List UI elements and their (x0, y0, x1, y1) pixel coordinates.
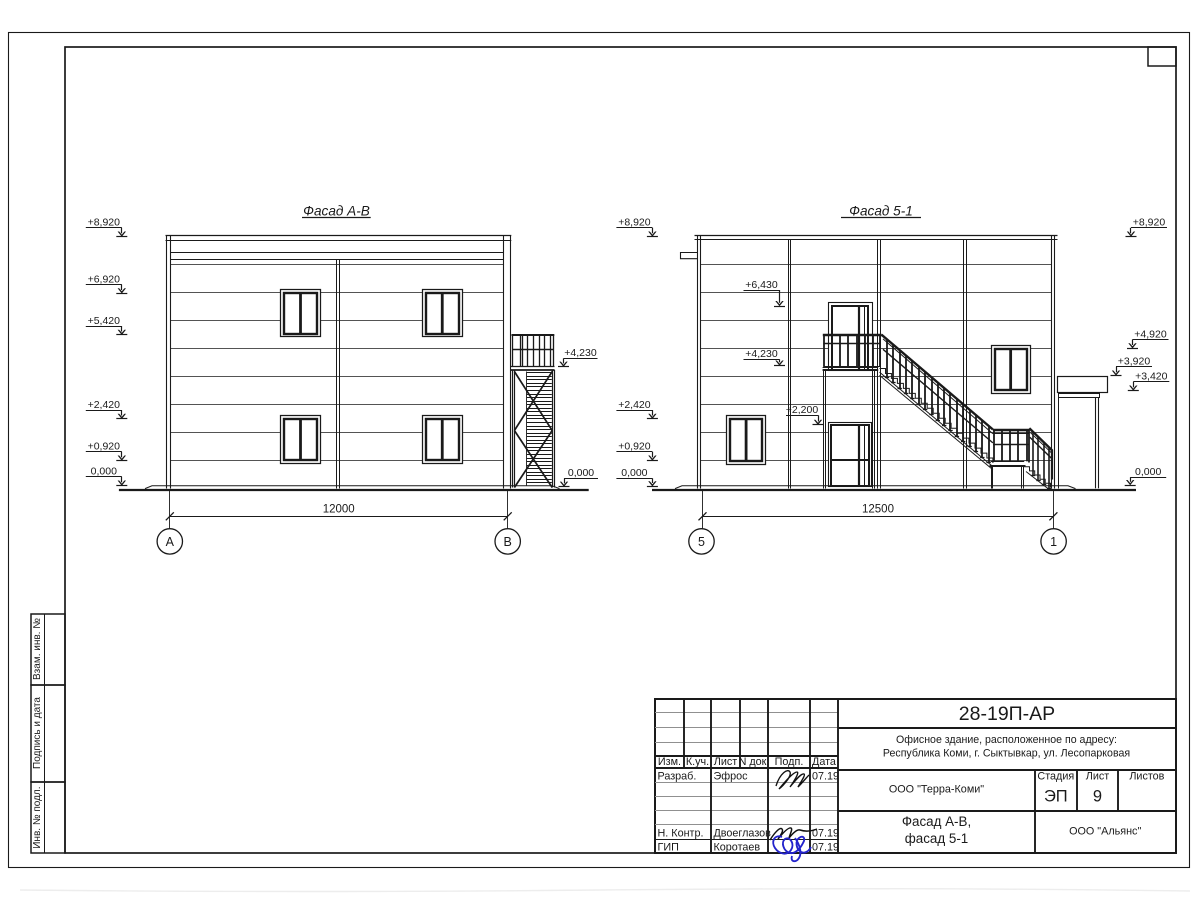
svg-text:12500: 12500 (862, 504, 894, 516)
svg-text:1: 1 (1050, 535, 1057, 549)
svg-text:+0,920: +0,920 (618, 441, 651, 453)
svg-text:Офисное здание, расположенное: Офисное здание, расположенное по адресу: (896, 734, 1117, 746)
svg-text:А: А (166, 535, 175, 549)
svg-text:0,000: 0,000 (621, 467, 647, 479)
svg-text:+4,230: +4,230 (564, 347, 597, 359)
svg-text:+0,920: +0,920 (88, 441, 121, 453)
svg-text:ООО "Терра-Коми": ООО "Терра-Коми" (889, 784, 984, 796)
svg-text:Фасад А-В: Фасад А-В (303, 204, 370, 219)
svg-text:+2,420: +2,420 (618, 399, 651, 411)
svg-text:ЭП: ЭП (1044, 788, 1068, 806)
svg-text:07.19: 07.19 (812, 842, 839, 854)
svg-text:+6,920: +6,920 (88, 273, 121, 285)
svg-text:0,000: 0,000 (1135, 466, 1161, 478)
svg-text:Коротаев: Коротаев (714, 842, 761, 854)
svg-text:9: 9 (1093, 788, 1102, 806)
svg-text:Инв. № подл.: Инв. № подл. (32, 786, 43, 848)
svg-text:12000: 12000 (323, 504, 355, 516)
svg-text:0,000: 0,000 (91, 466, 117, 478)
svg-text:28-19П-АР: 28-19П-АР (959, 703, 1055, 725)
svg-text:+6,430: +6,430 (745, 279, 778, 291)
svg-text:Подпись и дата: Подпись и дата (32, 697, 43, 769)
svg-text:Двоеглазов: Двоеглазов (714, 827, 772, 839)
svg-text:Подп.: Подп. (775, 756, 804, 768)
svg-text:В: В (504, 535, 512, 549)
svg-text:+8,920: +8,920 (88, 217, 121, 229)
svg-text:N док.: N док. (739, 756, 770, 768)
svg-text:+3,920: +3,920 (1118, 356, 1151, 368)
svg-text:ООО "Альянс": ООО "Альянс" (1069, 826, 1141, 838)
svg-text:0,000: 0,000 (568, 467, 594, 479)
svg-text:+4,920: +4,920 (1134, 328, 1167, 340)
svg-text:+4,230: +4,230 (745, 348, 778, 360)
svg-text:Лист: Лист (714, 756, 738, 768)
svg-text:Республика Коми, г. Сыктывкар,: Республика Коми, г. Сыктывкар, ул. Лесоп… (883, 747, 1130, 759)
svg-text:5: 5 (698, 535, 705, 549)
svg-text:фасад 5-1: фасад 5-1 (905, 831, 969, 846)
svg-text:Фасад 5-1: Фасад 5-1 (849, 204, 913, 219)
svg-text:+8,920: +8,920 (618, 217, 651, 229)
svg-text:+3,420: +3,420 (1135, 371, 1168, 383)
svg-text:+2,200: +2,200 (786, 404, 819, 416)
svg-text:+8,920: +8,920 (1133, 217, 1166, 229)
svg-text:ГИП: ГИП (658, 842, 679, 854)
svg-text:+2,420: +2,420 (88, 399, 121, 411)
svg-text:Дата: Дата (812, 756, 836, 768)
svg-text:Лист: Лист (1086, 771, 1110, 783)
svg-text:Н. Контр.: Н. Контр. (658, 827, 704, 839)
svg-text:Разраб.: Разраб. (658, 771, 697, 783)
svg-text:Эфрос: Эфрос (714, 771, 749, 783)
svg-text:Стадия: Стадия (1037, 771, 1074, 783)
svg-text:К.уч.: К.уч. (686, 756, 709, 768)
svg-text:Изм.: Изм. (658, 756, 681, 768)
svg-text:Листов: Листов (1129, 771, 1164, 783)
svg-text:07.19: 07.19 (812, 771, 839, 783)
svg-text:Фасад А-В,: Фасад А-В, (902, 814, 971, 829)
svg-text:+5,420: +5,420 (88, 315, 121, 327)
svg-text:Взам. инв. №: Взам. инв. № (32, 618, 43, 680)
